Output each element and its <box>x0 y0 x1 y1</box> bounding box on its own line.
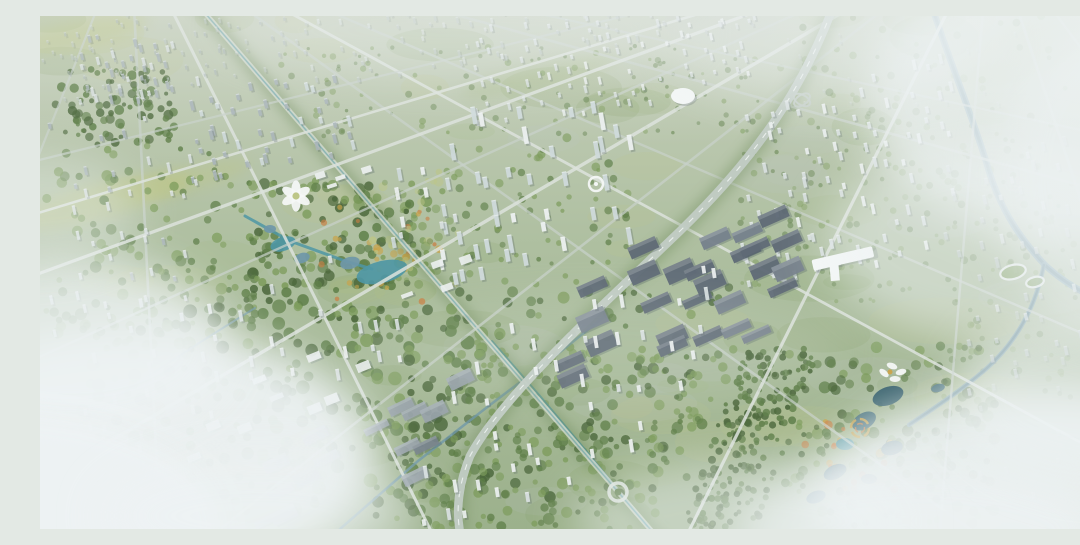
aerial-city-masterplan-image <box>40 16 1080 529</box>
scene-canvas <box>40 16 1080 529</box>
